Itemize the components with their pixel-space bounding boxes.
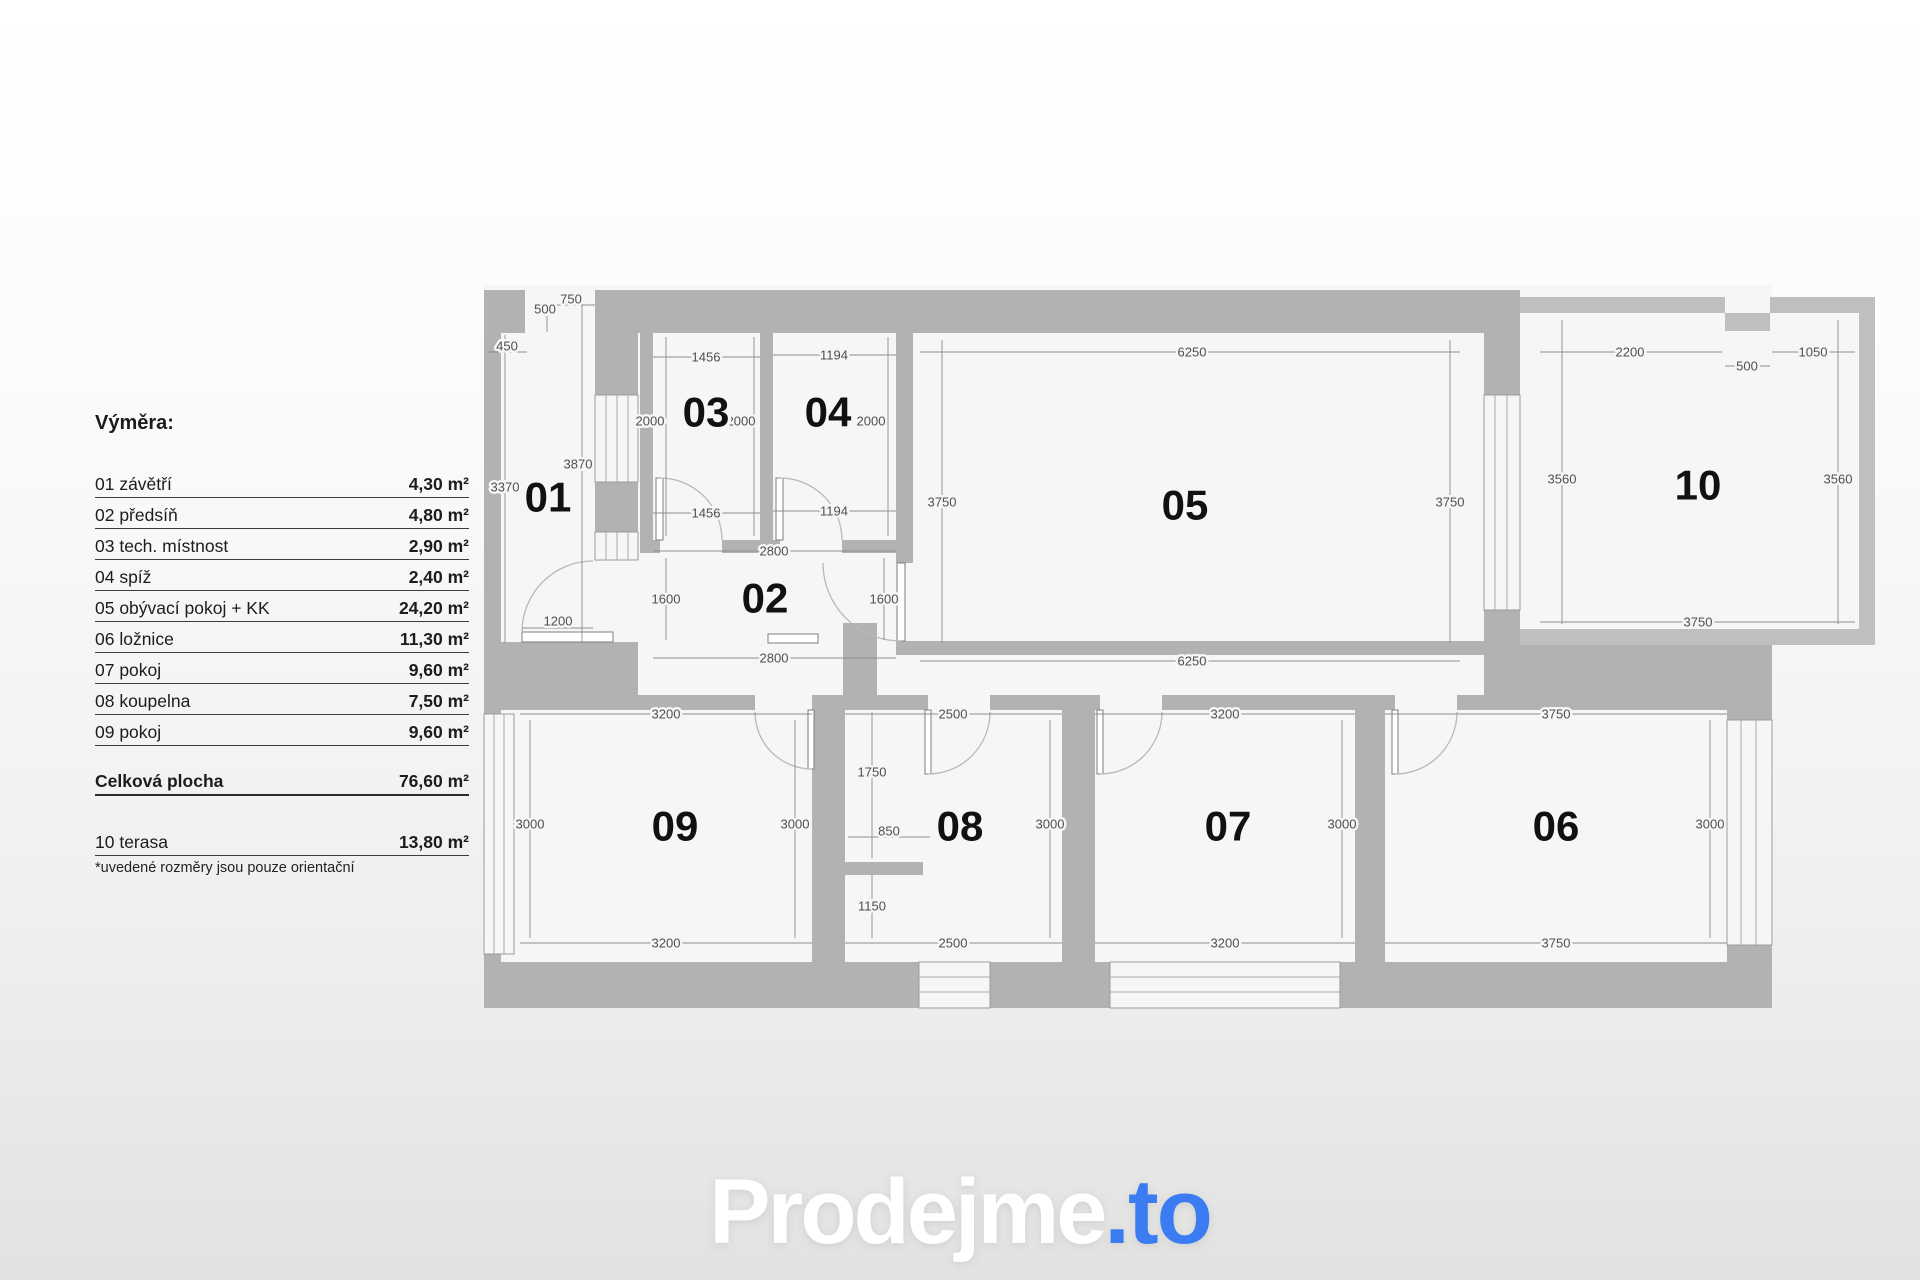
dimension-label: 3750 — [1436, 495, 1465, 510]
room-number: 05 — [1162, 482, 1209, 529]
room-number: 04 — [805, 389, 852, 436]
room-number: 02 — [742, 575, 789, 622]
dimension-label: 1456 — [692, 350, 721, 365]
dimension-label: 1600 — [652, 592, 681, 607]
dimension-label: 3560 — [1548, 472, 1577, 487]
dimension-label: 3750 — [1684, 615, 1713, 630]
room-number: 01 — [525, 474, 572, 521]
dimension-label: 3200 — [652, 707, 681, 722]
room-number: 03 — [683, 389, 730, 436]
dimension-label: 3750 — [928, 495, 957, 510]
floor-plan: 5007504503370387014561194200020002000145… — [0, 0, 1920, 1280]
dimension-label: 500 — [534, 302, 556, 317]
dimension-label: 3200 — [652, 936, 681, 951]
dimension-label: 450 — [496, 339, 518, 354]
room-number: 07 — [1205, 803, 1252, 850]
dimension-label: 1194 — [820, 504, 848, 519]
dimension-label: 3750 — [1542, 936, 1571, 951]
dimension-label: 3000 — [1696, 817, 1725, 832]
dimension-label: 3750 — [1542, 707, 1571, 722]
brand-logo-main: Prodejme — [709, 1161, 1104, 1263]
dimension-label: 1456 — [692, 506, 721, 521]
room-number: 10 — [1675, 462, 1722, 509]
dimension-label: 2000 — [636, 414, 665, 429]
dimension-label: 3000 — [1036, 817, 1065, 832]
dimension-label: 2500 — [939, 707, 968, 722]
dimension-label: 3200 — [1211, 707, 1240, 722]
dimension-label: 2800 — [760, 544, 789, 559]
dimension-label: 3870 — [564, 457, 593, 472]
dimension-label: 3000 — [516, 817, 545, 832]
dimension-label: 6250 — [1178, 345, 1207, 360]
dimension-label: 1150 — [858, 899, 886, 914]
dimension-label: 6250 — [1178, 654, 1207, 669]
dimension-label: 2500 — [939, 936, 968, 951]
dimension-label: 3000 — [1328, 817, 1357, 832]
dimension-label: 1050 — [1799, 345, 1828, 360]
dimension-label: 2000 — [857, 414, 886, 429]
dimension-label: 500 — [1736, 359, 1758, 374]
room-number: 06 — [1533, 803, 1580, 850]
room-number: 09 — [652, 803, 699, 850]
dimension-label: 2200 — [1616, 345, 1645, 360]
dimension-label: 3560 — [1824, 472, 1853, 487]
brand-logo-suffix: .to — [1104, 1161, 1210, 1263]
dimension-label: 2000 — [727, 414, 756, 429]
dimension-label: 3370 — [491, 480, 520, 495]
dimension-label: 850 — [878, 824, 900, 839]
dimension-label: 750 — [560, 292, 582, 307]
page: Výměra: 01 závětří 4,30 m² 02 předsíň 4,… — [0, 0, 1920, 1280]
dimension-label: 1194 — [820, 348, 848, 363]
dimension-label: 1750 — [858, 765, 887, 780]
dimension-label: 1600 — [870, 592, 899, 607]
dimension-label: 3200 — [1211, 936, 1240, 951]
dimension-label: 2800 — [760, 651, 789, 666]
dimension-label: 1200 — [544, 614, 573, 629]
room-number: 08 — [937, 803, 984, 850]
dimension-label: 3000 — [781, 817, 810, 832]
brand-logo: Prodejme.to — [0, 1160, 1920, 1265]
